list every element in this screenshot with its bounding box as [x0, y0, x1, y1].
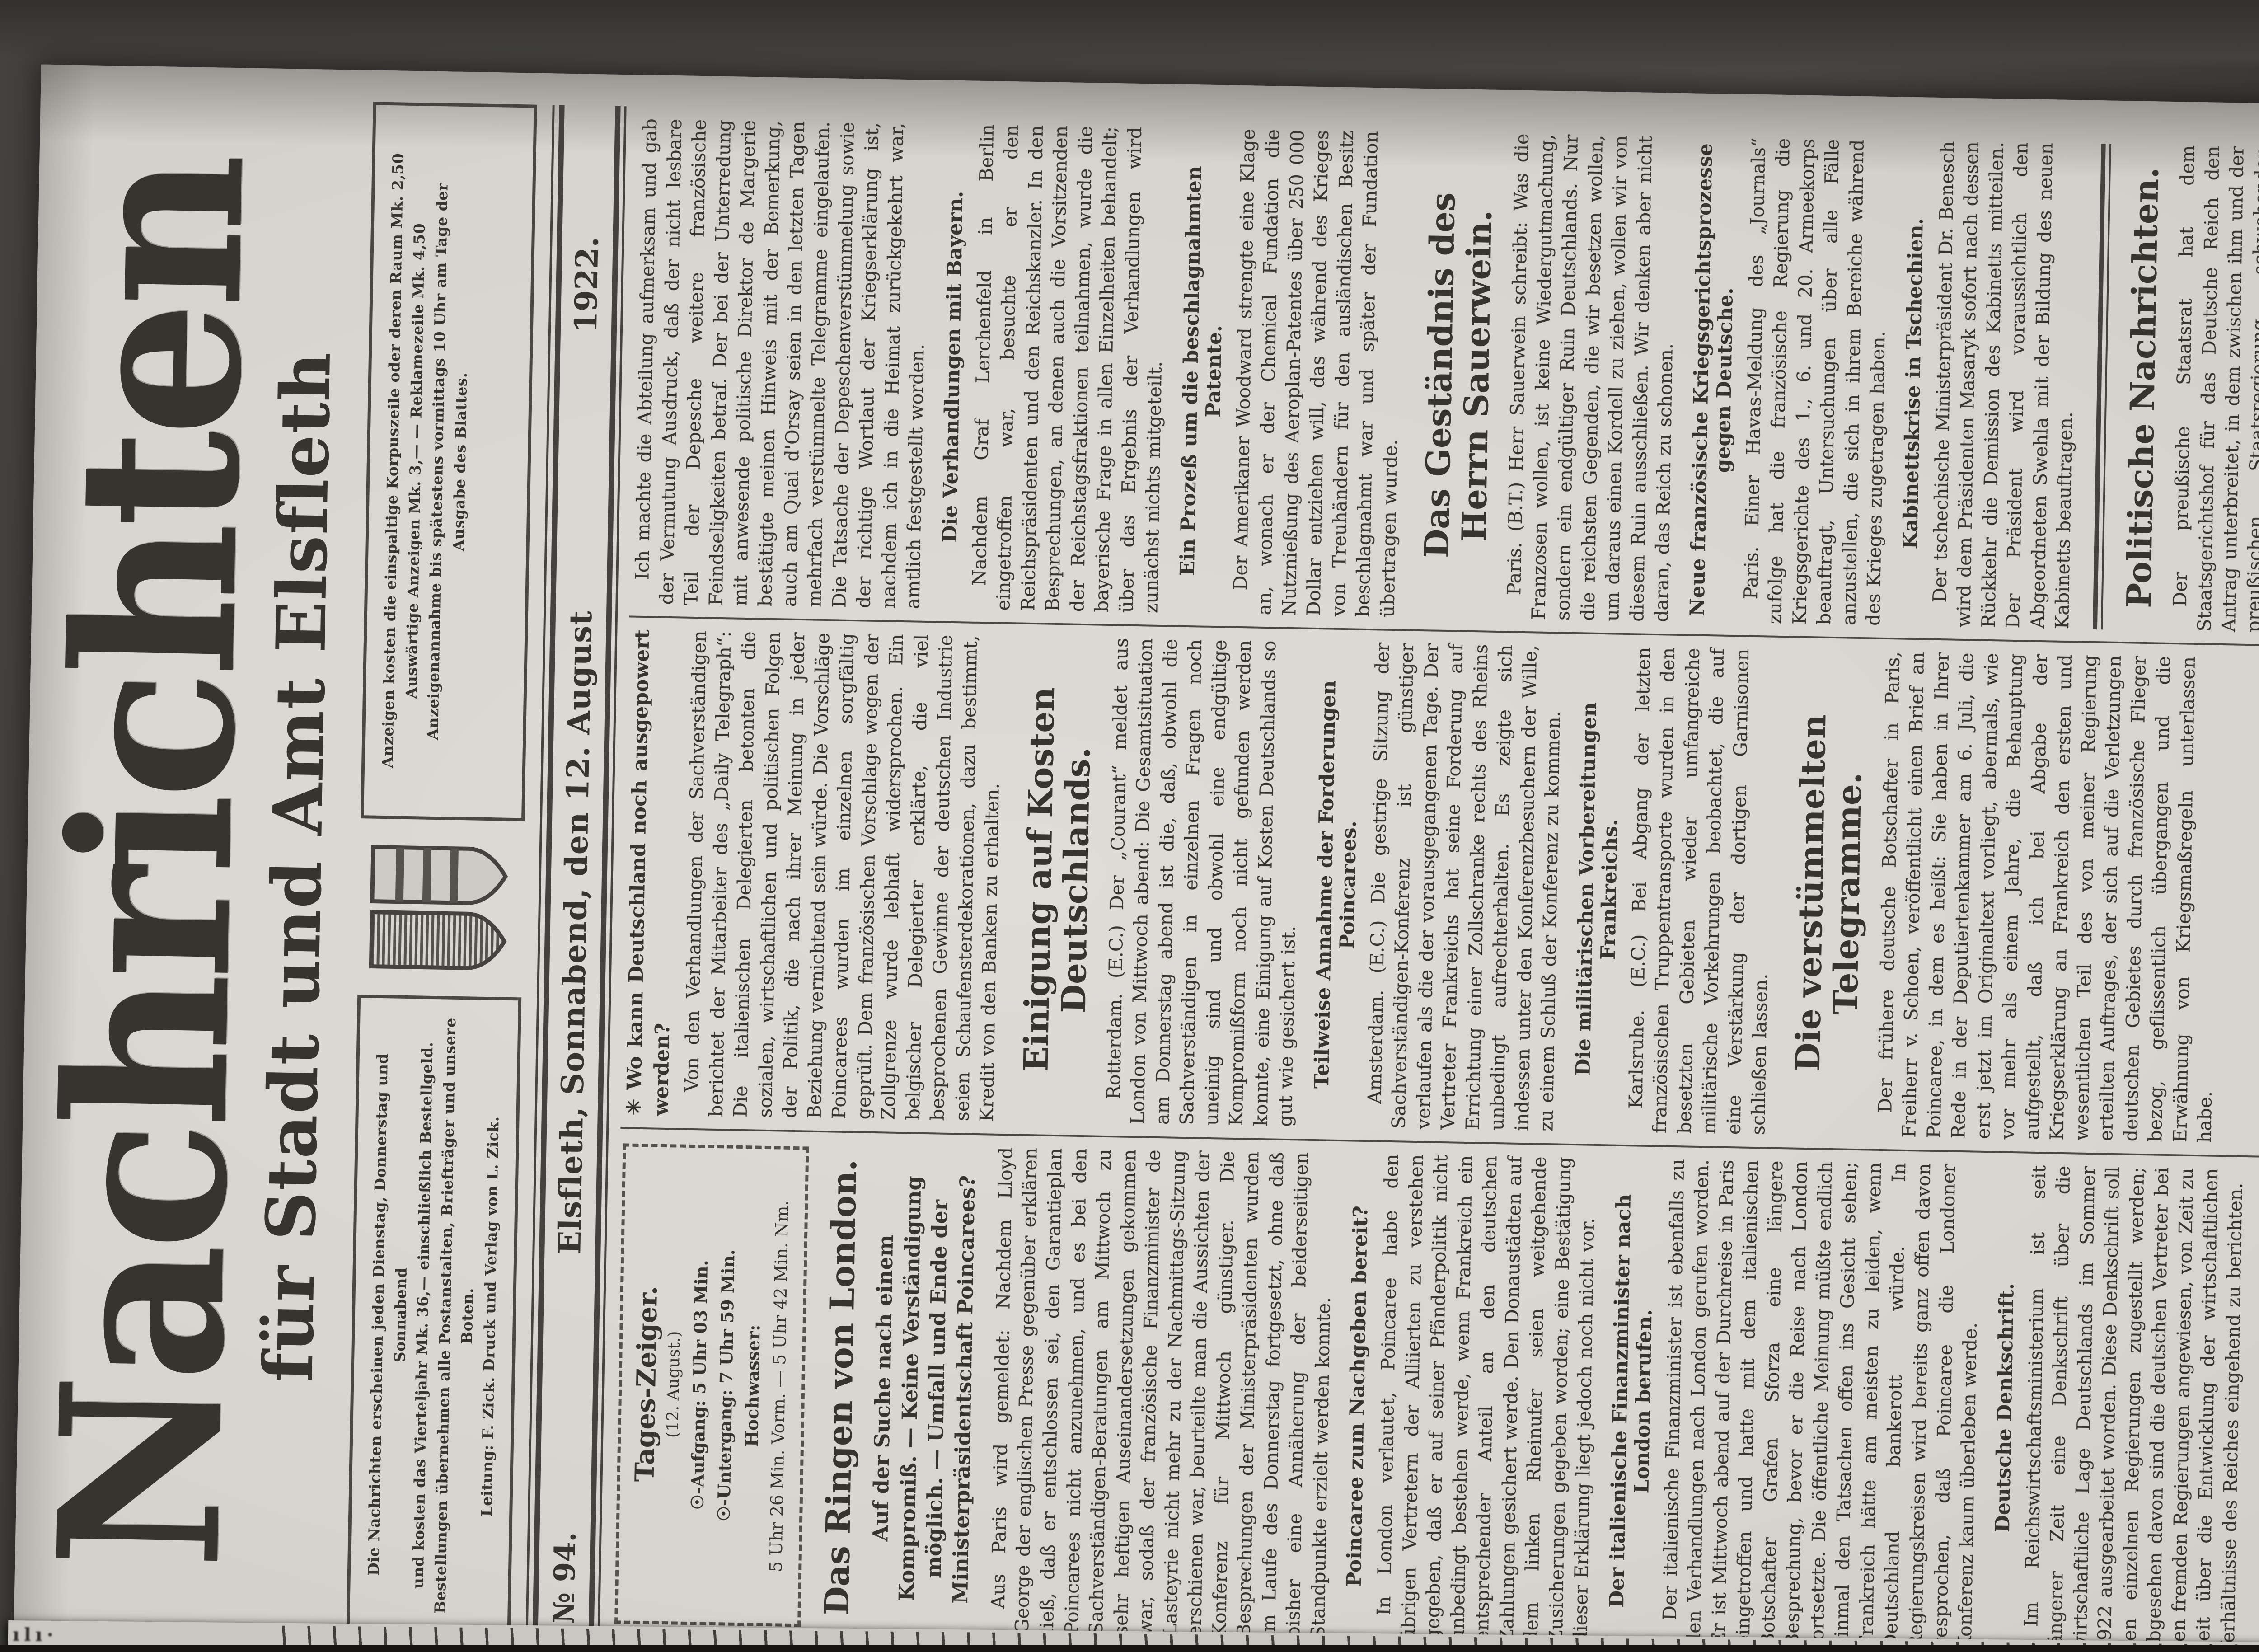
year: 1922.: [568, 236, 606, 333]
article-subhead: Neue französische Kriegsgerichtsprozesse…: [1686, 136, 1740, 623]
publication-info-row: Die Nachrichten erscheinen jeden Diensta…: [347, 102, 537, 1636]
article-headline: Politische Nachrichten.: [2121, 144, 2166, 631]
article-paragraph: Nachdem Graf Lerchenfeld in Berlin einge…: [966, 124, 1172, 614]
article-paragraph: Ich machte die Abteilung aufmerksam und …: [630, 118, 934, 610]
article-headline: Die verstümmelten Telegramme.: [1789, 650, 1871, 1137]
tages-zeiger-title: Tages-Zeiger.: [627, 1151, 666, 1617]
article-paragraph: Der italienische Finanzminister ist eben…: [1657, 1159, 1985, 1650]
body-columns: Tages-Zeiger.(12. August.)☉-Aufgang: 5 U…: [612, 107, 2259, 1652]
article-headline: Das Ringen von London.: [819, 1144, 864, 1631]
article-subhead: Der italienische Finanzminister nach Lon…: [1604, 1158, 1659, 1644]
tages-zeiger-box: Tages-Zeiger.(12. August.)☉-Aufgang: 5 U…: [614, 1143, 809, 1627]
lead-paragraph: ✳ Wo kann Deutschland noch ausgepowert w…: [621, 629, 683, 1116]
article-deck: Auf der Suche nach einem Kompromiß. — Ke…: [866, 1163, 982, 1614]
article-subhead: Deutsche Denkschrift.: [1989, 1164, 2020, 1651]
newspaper-title: Nachrichten: [37, 96, 267, 1631]
shadow-below-pages: [0, 1645, 2259, 1652]
article-paragraph: Paris. Einer Havas-Meldung des „Journals…: [1738, 137, 1894, 626]
subscription-info-box: Die Nachrichten erscheinen jeden Diensta…: [347, 995, 522, 1636]
issue-number: № 94.: [547, 1531, 583, 1624]
article-subhead: Poincaree zum Nachgeben bereit?: [1342, 1153, 1373, 1639]
tide-label: Hochwasser:: [739, 1153, 767, 1619]
article-paragraph: Rotterdam. (E.C.) Der „Courant“ meldet a…: [1101, 638, 1306, 1127]
article-paragraph: Aus Paris wird gemeldet: Nachdem Lloyd G…: [985, 1147, 1339, 1638]
article-subhead: Ein Prozeß um die beschlagnahmten Patent…: [1175, 128, 1230, 615]
article-paragraph: Der Amerikaner Woodward strengte eine Kl…: [1228, 129, 1408, 618]
scanner-bed-top-shadow: [0, 0, 2259, 68]
column-2: ✳ Wo kann Deutschland noch ausgepowert w…: [621, 618, 2259, 1160]
sunrise-time: ☉-Aufgang: 5 Uhr 03 Min.: [685, 1152, 714, 1618]
coat-of-arms: [358, 832, 525, 984]
article-subhead: Die Verhandlungen mit Bayern.: [937, 124, 969, 610]
book-scan-photo: Nachrichten für Stadt und Amt Elsfleth D…: [0, 0, 2259, 1652]
place-date: Elsfleth, Sonnabend, den 12. August: [552, 610, 600, 1254]
article-paragraph: Der preußische Staatsrat hat dem Staatsg…: [2167, 145, 2259, 634]
article-paragraph: Der frühere deutsche Botschafter in Pari…: [1872, 651, 2226, 1143]
article-subhead: Teilweise Annahme der Forderungen Poinca…: [1309, 641, 1364, 1128]
article-headline: Das Geständnis des Herrn Sauerwein.: [1418, 132, 1500, 619]
column-1: Tages-Zeiger.(12. August.)☉-Aufgang: 5 U…: [612, 1129, 2259, 1652]
next-page-text-sliver: ılı·: [13, 1624, 58, 1646]
article-paragraph: Paris. (B.T.) Herr Sauerwein schreibt: W…: [1501, 133, 1682, 622]
article-subhead: Kabinettskrise in Tschechien.: [1898, 141, 1929, 627]
advertising-rates-box: Anzeigen kosten die einspaltige Korpusze…: [361, 102, 537, 821]
article-paragraph: Im Reichswirtschaftsministerium ist seit…: [2018, 1165, 2248, 1652]
article-subhead: Die militärischen Vorbereitungen Frankre…: [1570, 646, 1625, 1132]
sunset-time: ☉-Untergang: 7 Uhr 59 Min.: [712, 1153, 741, 1618]
section-rule: [2093, 144, 2111, 630]
masthead: Nachrichten für Stadt und Amt Elsfleth: [41, 97, 351, 1633]
article-paragraph: Der tschechische Ministerpräsident Dr. B…: [1927, 141, 2083, 629]
article-paragraph: Karlsruhe. (E.C.) Bei Abgang der letzten…: [1623, 647, 1779, 1136]
tide-times: 5 Uhr 26 Min. Vorm. — 5 Uhr 42 Min. Nm.: [765, 1154, 793, 1619]
column-3: Ich machte die Abteilung aufmerksam und …: [629, 107, 2259, 649]
newspaper-page: Nachrichten für Stadt und Amt Elsfleth D…: [14, 65, 2259, 1652]
article-paragraph: Von den Verhandlungen der Sachverständig…: [679, 630, 1008, 1122]
article-paragraph: In London verlautet, Poincaree habe den …: [1371, 1154, 1601, 1643]
article-paragraph: Amsterdam. (E.C.) Die gestrige Sitzung d…: [1362, 642, 1567, 1131]
article-headline: Einigung auf Kosten Deutschlands.: [1017, 636, 1099, 1123]
